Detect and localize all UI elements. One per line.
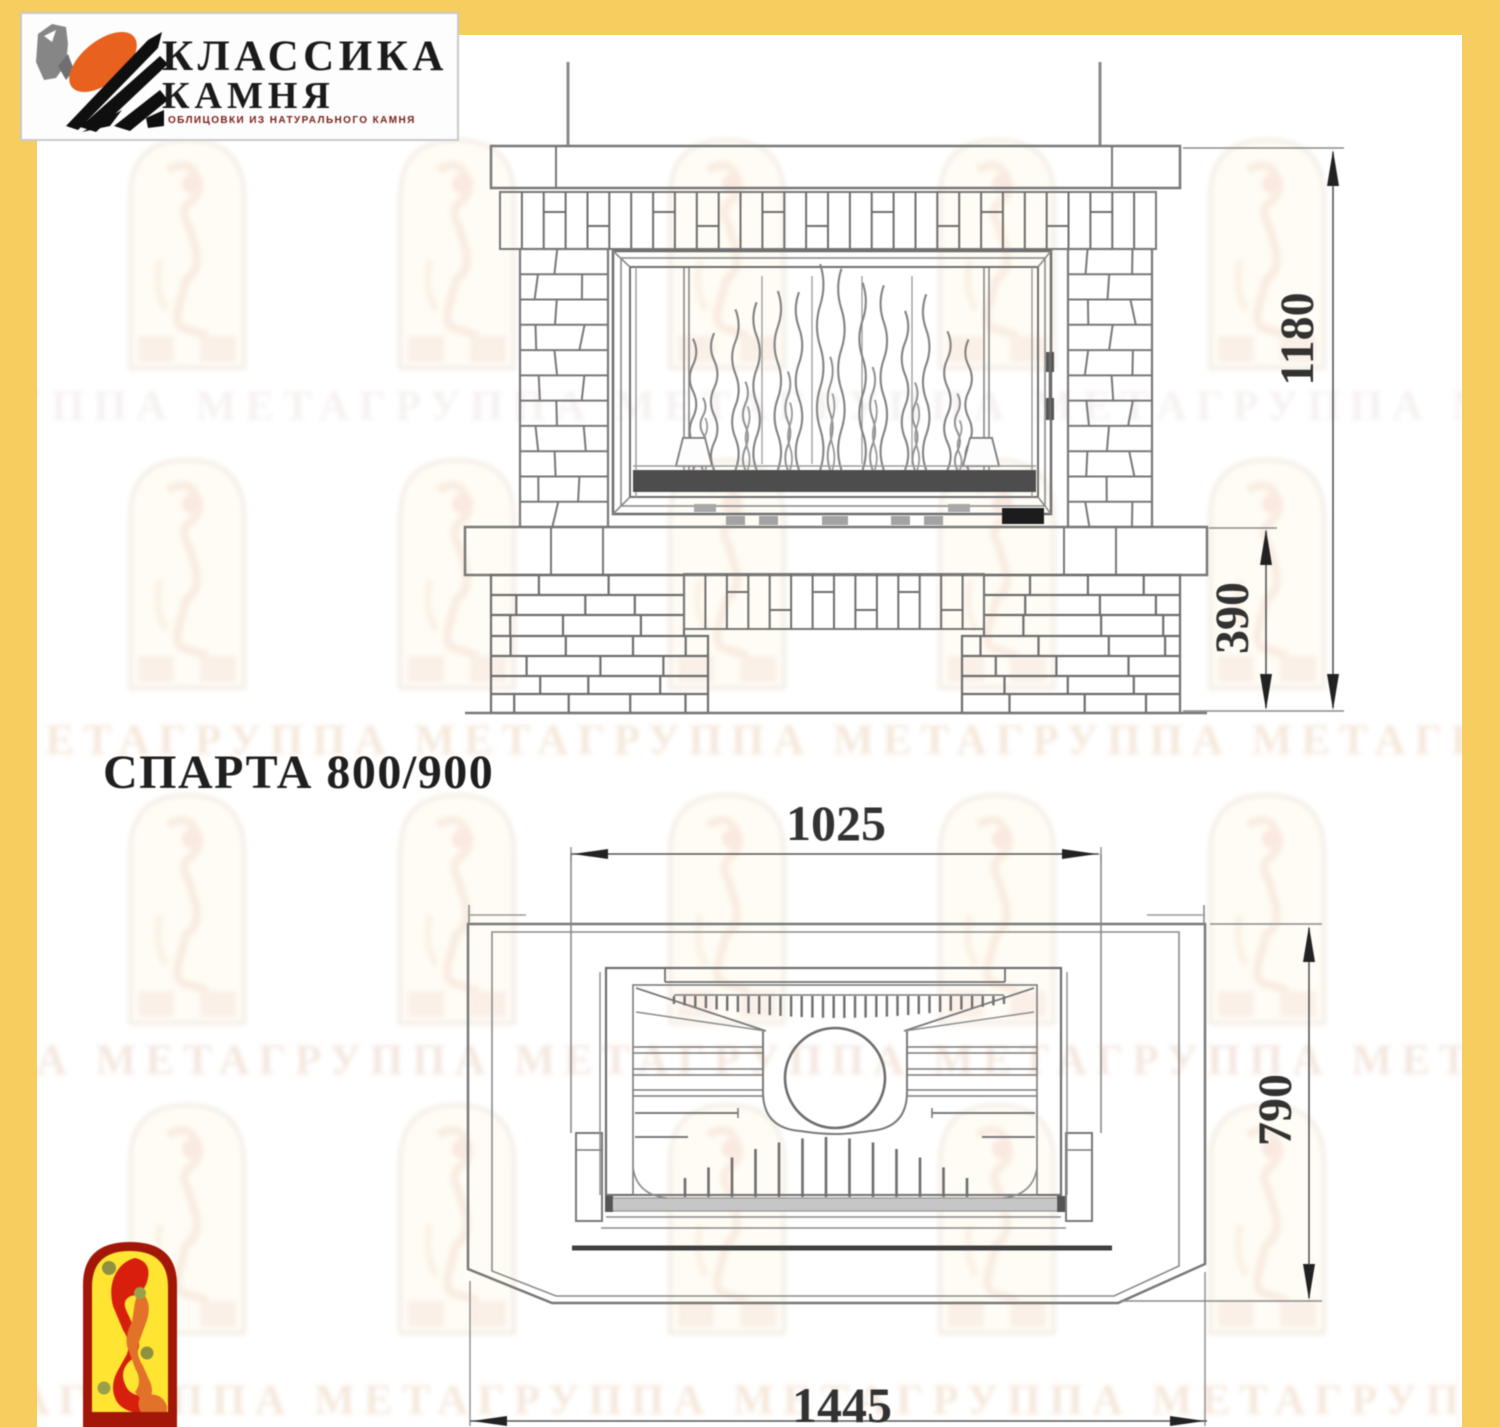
svg-text:790: 790	[1249, 1074, 1302, 1146]
svg-text:390: 390	[1206, 582, 1259, 654]
svg-text:1180: 1180	[1271, 292, 1324, 385]
svg-text:1025: 1025	[786, 795, 886, 851]
svg-text:1445: 1445	[792, 1377, 892, 1427]
